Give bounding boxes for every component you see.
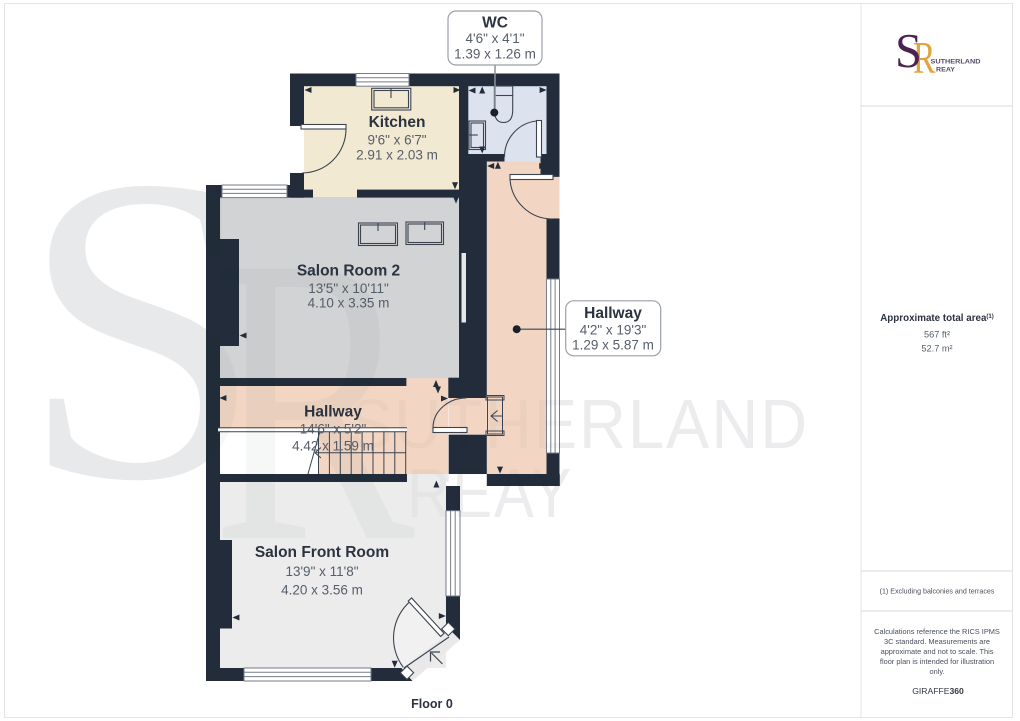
svg-text:3C standard. Measurements are: 3C standard. Measurements are (884, 637, 990, 646)
svg-text:WC: WC (482, 15, 508, 32)
svg-text:(1) Excluding balconies and te: (1) Excluding balconies and terraces (880, 588, 995, 596)
svg-text:REAY: REAY (936, 66, 955, 73)
svg-text:Approximate total area(1): Approximate total area(1) (880, 313, 994, 324)
svg-text:567 ft²: 567 ft² (924, 330, 950, 340)
svg-text:4'6" x 4'1": 4'6" x 4'1" (465, 31, 524, 46)
svg-text:approximate and not to scale.: approximate and not to scale. This (881, 647, 994, 656)
svg-text:floor plan is intended for ill: floor plan is intended for illustration (880, 657, 994, 666)
svg-text:Kitchen: Kitchen (369, 114, 426, 131)
svg-text:only.: only. (929, 667, 944, 676)
svg-text:SUTHERLAND: SUTHERLAND (931, 59, 981, 66)
svg-text:Hallway: Hallway (584, 305, 642, 322)
svg-text:2.91 x 2.03 m: 2.91 x 2.03 m (356, 148, 438, 163)
svg-text:Floor 0: Floor 0 (411, 697, 453, 711)
svg-text:S: S (895, 25, 922, 78)
svg-text:4'2" x 19'3": 4'2" x 19'3" (580, 323, 647, 338)
svg-text:Calculations reference the RIC: Calculations reference the RICS IPMS (874, 627, 1000, 636)
svg-text:1.39 x 1.26 m: 1.39 x 1.26 m (454, 47, 536, 62)
svg-text:GIRAFFE360: GIRAFFE360 (912, 686, 964, 696)
svg-text:9'6" x 6'7": 9'6" x 6'7" (367, 133, 426, 148)
svg-text:52.7 m²: 52.7 m² (921, 344, 952, 354)
svg-text:1.29 x 5.87 m: 1.29 x 5.87 m (572, 338, 654, 353)
